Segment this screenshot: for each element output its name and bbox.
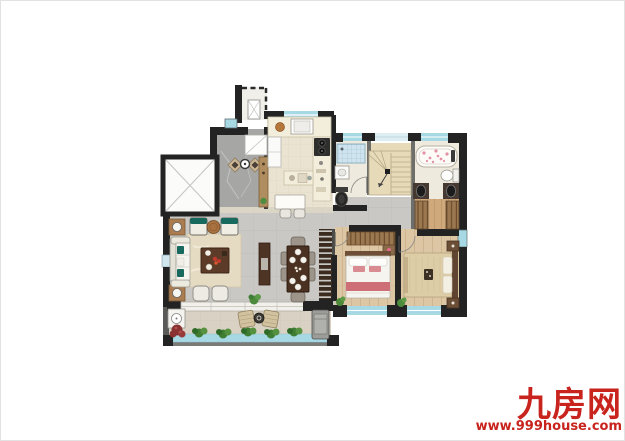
elevator: [163, 157, 217, 214]
toilet: [335, 187, 348, 192]
floorplan-image: 九房网 www.999house.com: [0, 0, 625, 441]
watermark-url: www.999house.com: [476, 420, 622, 433]
ac-unit: [248, 100, 260, 119]
sofa: [170, 237, 190, 287]
armchair: [221, 218, 238, 235]
round-table: [207, 221, 220, 234]
lounge-chair: [262, 310, 280, 328]
wall: [235, 85, 242, 123]
ottoman: [212, 286, 228, 301]
shower: [337, 144, 365, 163]
breakfast-table: [275, 195, 305, 209]
lounge-chair: [238, 310, 256, 328]
watermark-brand: 九房网: [476, 388, 622, 422]
master-toilet: [453, 169, 459, 182]
floor-plan: [1, 1, 625, 441]
ottoman: [193, 286, 209, 301]
bed: [345, 251, 391, 298]
entry-door: [245, 135, 267, 155]
coffee-table: [201, 248, 229, 273]
armchair: [190, 218, 207, 235]
threshold-strip: [215, 207, 333, 213]
watermark: 九房网 www.999house.com: [476, 388, 622, 433]
staircase: [369, 151, 411, 195]
washing-machine: [312, 310, 329, 339]
master-bed: [403, 251, 458, 299]
slat-partition: [319, 229, 332, 299]
plant-icon: [260, 198, 266, 204]
wardrobe: [347, 232, 395, 245]
tv-console: [259, 243, 270, 285]
balcony-table: [254, 313, 264, 323]
